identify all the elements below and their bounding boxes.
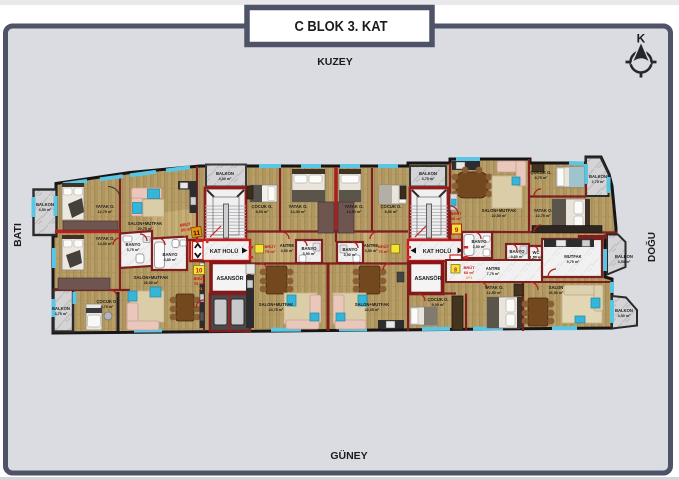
svg-text:1,50 m²: 1,50 m² [530, 256, 543, 260]
svg-text:3+1: 3+1 [466, 275, 474, 280]
svg-text:DOĞU: DOĞU [645, 232, 658, 262]
svg-text:11: 11 [193, 229, 201, 237]
svg-text:BATI: BATI [12, 223, 24, 247]
svg-text:ÇOCUK O.: ÇOCUK O. [252, 204, 273, 209]
svg-text:12,75 m²: 12,75 m² [98, 210, 114, 214]
svg-text:BALKON: BALKON [615, 254, 633, 259]
svg-text:75 m²: 75 m² [265, 249, 276, 254]
svg-text:SALON+MUTFAK: SALON+MUTFAK [128, 221, 163, 226]
svg-text:BANYO: BANYO [125, 242, 141, 247]
svg-text:ASANSÖR: ASANSÖR [217, 275, 244, 282]
svg-text:75 m²: 75 m² [378, 249, 389, 254]
svg-text:BANYO: BANYO [509, 249, 525, 254]
svg-text:7,75 m²: 7,75 m² [487, 272, 500, 276]
svg-text:28,00 m²: 28,00 m² [144, 281, 160, 285]
svg-text:2+1: 2+1 [453, 219, 461, 224]
svg-text:SALON+MUTFAK: SALON+MUTFAK [482, 208, 517, 213]
svg-text:ANTRE: ANTRE [486, 266, 501, 271]
svg-text:12,75 m²: 12,75 m² [536, 214, 552, 218]
svg-text:8,50 m²: 8,50 m² [385, 210, 398, 214]
svg-text:BANYO: BANYO [471, 239, 487, 244]
svg-text:ÇOCUK O.: ÇOCUK O. [531, 170, 552, 175]
svg-text:YATAK O.: YATAK O. [533, 208, 552, 213]
svg-text:3,50 m²: 3,50 m² [281, 249, 294, 253]
svg-text:3,50 m²: 3,50 m² [344, 253, 357, 257]
svg-text:KAT HOLÜ: KAT HOLÜ [210, 248, 238, 255]
svg-text:4,50 m²: 4,50 m² [39, 208, 52, 212]
svg-text:ÇOCUK O.: ÇOCUK O. [428, 297, 449, 302]
svg-text:SALON+MUTFAK: SALON+MUTFAK [134, 275, 169, 280]
svg-text:4,80 m²: 4,80 m² [164, 258, 177, 262]
svg-text:KAT HOLÜ: KAT HOLÜ [423, 248, 451, 255]
svg-text:BALKON: BALKON [216, 171, 234, 176]
svg-text:KUZEY: KUZEY [317, 56, 353, 68]
svg-text:14,50 m²: 14,50 m² [347, 210, 363, 214]
svg-text:8,75 m²: 8,75 m² [535, 176, 548, 180]
svg-text:C BLOK 3. KAT: C BLOK 3. KAT [295, 19, 388, 35]
svg-text:2,75 m²: 2,75 m² [592, 180, 605, 184]
svg-text:3,50 m²: 3,50 m² [618, 260, 631, 264]
svg-text:14,30 m²: 14,30 m² [291, 210, 307, 214]
svg-text:SALON: SALON [549, 285, 564, 290]
svg-text:ÇOCUK O.: ÇOCUK O. [97, 299, 118, 304]
svg-text:26,50 m²: 26,50 m² [549, 291, 565, 295]
svg-text:BANYO: BANYO [162, 252, 178, 257]
svg-text:22,25 m²: 22,25 m² [365, 308, 381, 312]
svg-text:3,75 m²: 3,75 m² [127, 248, 140, 252]
svg-text:3,50 m²: 3,50 m² [365, 249, 378, 253]
svg-text:9,00 m²: 9,00 m² [432, 303, 445, 307]
svg-text:BANYO: BANYO [301, 246, 317, 251]
svg-text:YATAK O.: YATAK O. [95, 236, 114, 241]
svg-text:BALKON: BALKON [589, 174, 607, 179]
svg-text:3,50 m²: 3,50 m² [511, 255, 524, 259]
svg-text:SALON+MUTFAK: SALON+MUTFAK [259, 302, 294, 307]
svg-text:YATAK O.: YATAK O. [288, 204, 307, 209]
svg-text:ASANSÖR: ASANSÖR [415, 275, 442, 282]
svg-text:ÇOCUK O.: ÇOCUK O. [381, 204, 402, 209]
svg-text:ANTRE: ANTRE [364, 243, 379, 248]
svg-text:MUTFAK: MUTFAK [564, 254, 581, 259]
svg-text:BALKON: BALKON [52, 306, 70, 311]
svg-text:8: 8 [454, 268, 457, 274]
svg-text:3,50 m²: 3,50 m² [473, 245, 486, 249]
svg-text:BANYO: BANYO [342, 247, 358, 252]
svg-text:8,75 m²: 8,75 m² [101, 305, 114, 309]
svg-text:YATAK O.: YATAK O. [95, 204, 114, 209]
svg-text:14,50 m²: 14,50 m² [98, 242, 114, 246]
svg-text:SALON+MUTFAK: SALON+MUTFAK [355, 302, 390, 307]
svg-text:22,50 m²: 22,50 m² [492, 214, 508, 218]
svg-text:YATAK O.: YATAK O. [484, 285, 503, 290]
svg-text:BALKON: BALKON [36, 202, 54, 207]
svg-text:4,00 m²: 4,00 m² [219, 177, 232, 181]
svg-text:BALKON: BALKON [615, 308, 633, 313]
svg-text:9,75 m²: 9,75 m² [567, 260, 580, 264]
svg-text:2+1: 2+1 [196, 286, 204, 291]
svg-text:3,50 m²: 3,50 m² [303, 252, 316, 256]
svg-text:3,75 m²: 3,75 m² [422, 177, 435, 181]
svg-text:ANTRE: ANTRE [280, 243, 295, 248]
svg-text:K: K [637, 32, 646, 46]
svg-text:WC: WC [533, 250, 540, 255]
svg-text:4,50 m²: 4,50 m² [618, 314, 631, 318]
svg-text:12,50 m²: 12,50 m² [487, 291, 503, 295]
svg-text:3,75 m²: 3,75 m² [55, 312, 68, 316]
svg-text:10: 10 [196, 269, 203, 275]
svg-text:20,75 m²: 20,75 m² [138, 227, 154, 231]
svg-text:9: 9 [455, 227, 459, 234]
svg-text:24,75 m²: 24,75 m² [269, 308, 285, 312]
svg-text:YATAK O.: YATAK O. [344, 204, 363, 209]
svg-text:BALKON: BALKON [419, 171, 437, 176]
svg-text:GÜNEY: GÜNEY [330, 449, 367, 462]
svg-text:8,50 m²: 8,50 m² [256, 210, 269, 214]
